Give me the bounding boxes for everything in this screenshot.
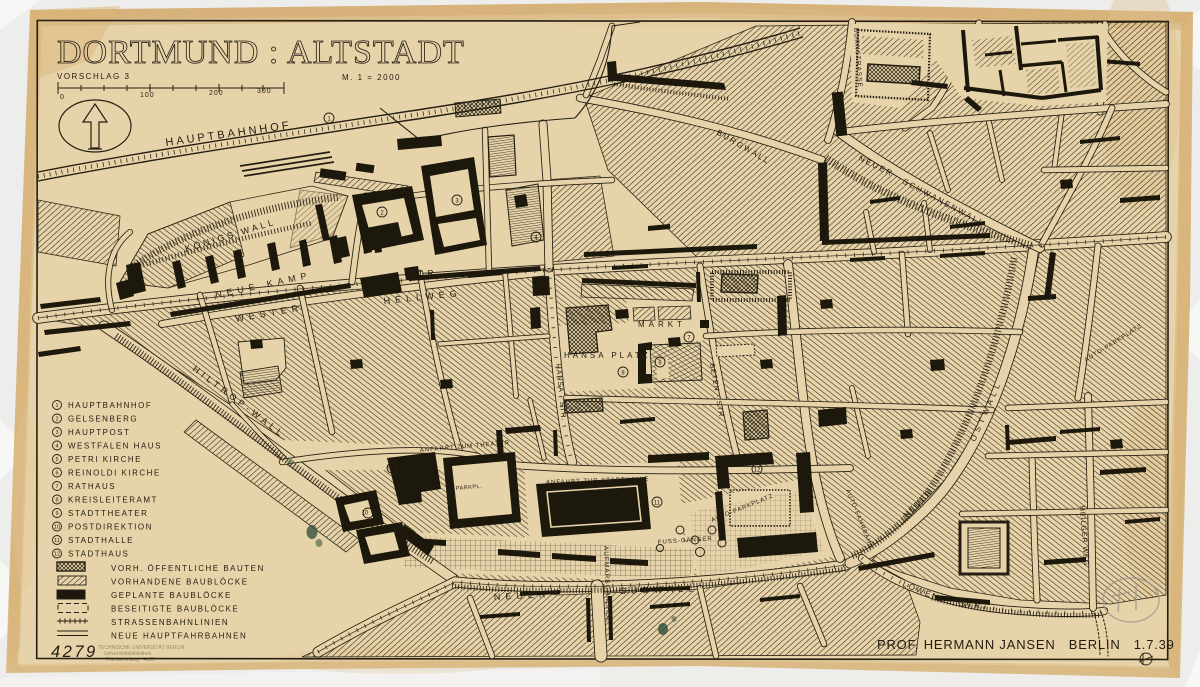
svg-text:10: 10: [54, 525, 60, 531]
svg-text:6: 6: [55, 471, 58, 477]
svg-text:9: 9: [55, 511, 58, 517]
svg-text:12: 12: [754, 468, 761, 474]
svg-text:HANSA PLATZ: HANSA PLATZ: [564, 351, 651, 360]
svg-text:POSTDIREKTION: POSTDIREKTION: [68, 523, 153, 532]
svg-text:VORH. ÖFFENTLICHE BAUTEN: VORH. ÖFFENTLICHE BAUTEN: [111, 564, 265, 573]
svg-text:4: 4: [55, 444, 58, 450]
svg-text:NEUE HAUPTFAHRBAHNEN: NEUE HAUPTFAHRBAHNEN: [111, 632, 247, 641]
svg-text:11: 11: [654, 501, 661, 507]
svg-text:1: 1: [55, 403, 58, 409]
svg-text:BESEITIGTE BAUBLÖCKE: BESEITIGTE BAUBLÖCKE: [111, 605, 239, 614]
svg-text:STADTTHEATER: STADTTHEATER: [68, 509, 148, 518]
svg-text:VORHANDENE BAUBLÖCKE: VORHANDENE BAUBLÖCKE: [111, 578, 249, 587]
svg-text:7: 7: [55, 484, 58, 490]
svg-text:10: 10: [362, 511, 369, 517]
svg-text:3: 3: [55, 430, 58, 436]
svg-text:2: 2: [55, 417, 58, 423]
svg-text:HAUPTPOST: HAUPTPOST: [68, 428, 130, 437]
svg-text:RATHAUS: RATHAUS: [68, 482, 116, 491]
svg-text:STADTHAUS: STADTHAUS: [68, 550, 129, 559]
svg-text:VORSCHLAG 3: VORSCHLAG 3: [57, 72, 130, 81]
svg-text:TECHNISCHE UNIVERSITÄT BERLIN: TECHNISCHE UNIVERSITÄT BERLIN: [98, 644, 185, 651]
svg-text:12: 12: [54, 552, 60, 558]
svg-text:KREISLEITERAMT: KREISLEITERAMT: [68, 496, 158, 505]
svg-text:REINOLDI KIRCHE: REINOLDI KIRCHE: [68, 469, 161, 478]
svg-text:WESTFALEN HAUS: WESTFALEN HAUS: [68, 442, 162, 451]
svg-text:GEPLANTE BAUBLÖCKE: GEPLANTE BAUBLÖCKE: [111, 591, 232, 600]
svg-text:PETRI KIRCHE: PETRI KIRCHE: [68, 455, 142, 464]
svg-text:11: 11: [54, 538, 60, 544]
svg-text:STADTHALLE: STADTHALLE: [68, 536, 134, 545]
svg-text:MARKT: MARKT: [638, 320, 686, 329]
svg-text:5: 5: [55, 457, 58, 463]
svg-text:4279: 4279: [51, 643, 98, 661]
svg-text:GELSENBERG: GELSENBERG: [68, 415, 138, 424]
svg-text:DORTMUND : ALTSTADT: DORTMUND : ALTSTADT: [57, 34, 465, 71]
svg-text:Plansammlung · 4a33: Plansammlung · 4a33: [106, 657, 155, 663]
svg-text:HAUPTBAHNHOF: HAUPTBAHNHOF: [68, 401, 152, 410]
svg-text:0: 0: [60, 94, 65, 101]
svg-text:200: 200: [209, 90, 224, 97]
svg-text:PROF. HERMANN JANSEN BERLIN: PROF. HERMANN JANSEN BERLIN 1.7.39: [877, 637, 1175, 652]
svg-text:100: 100: [140, 92, 155, 99]
svg-text:8: 8: [55, 498, 58, 504]
svg-text:M. 1 = 2000: M. 1 = 2000: [342, 73, 401, 82]
svg-text:STRASSENBAHNLINIEN: STRASSENBAHNLINIEN: [111, 618, 229, 627]
svg-text:300: 300: [257, 88, 272, 95]
